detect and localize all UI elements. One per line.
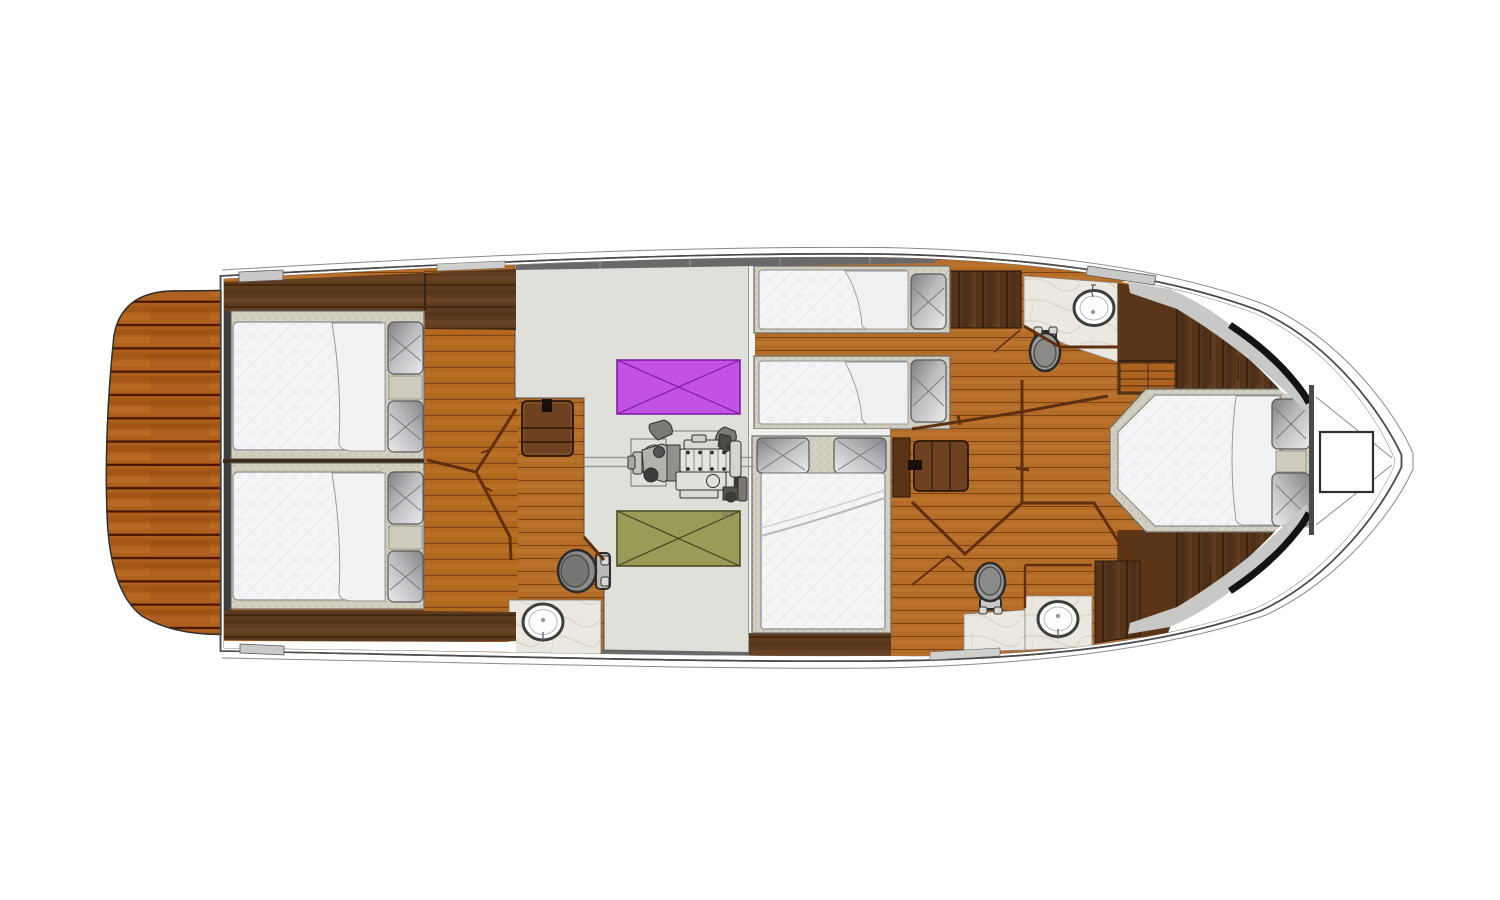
svg-text:510: 510 bbox=[722, 511, 734, 518]
